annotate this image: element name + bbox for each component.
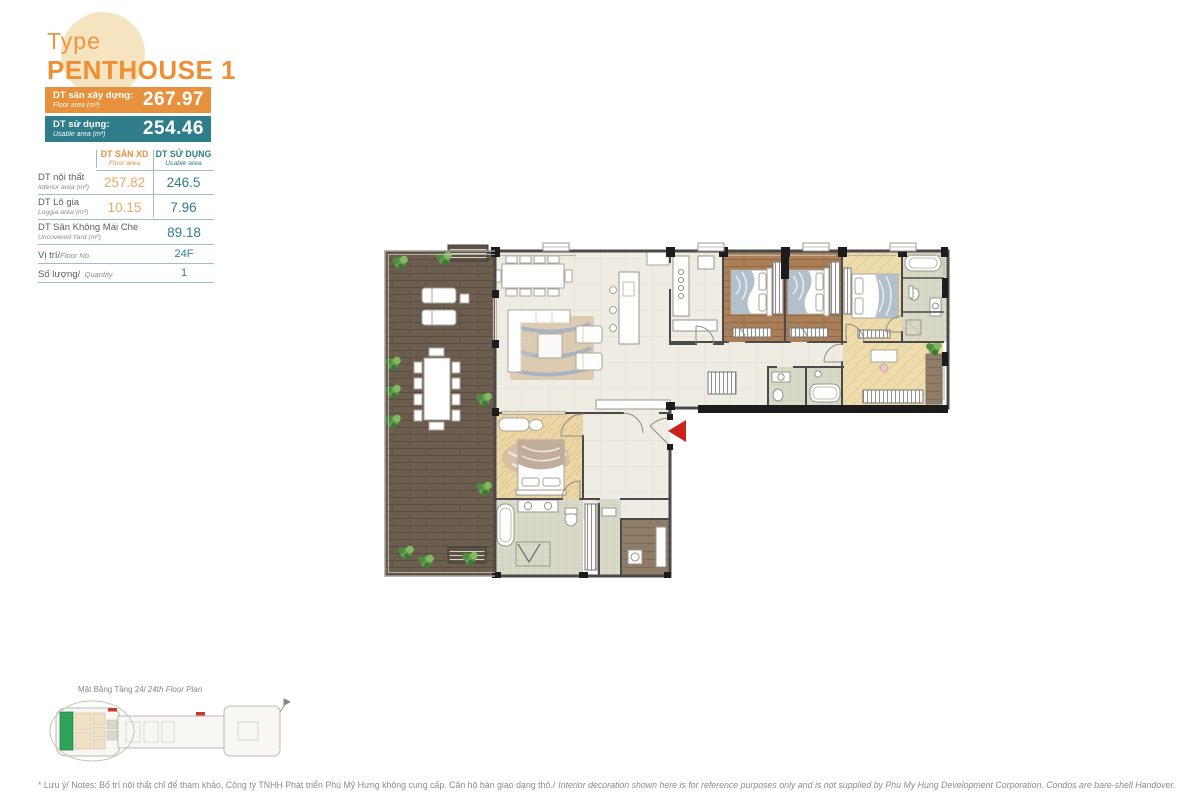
headboard <box>824 268 829 316</box>
chaise <box>499 418 529 431</box>
row-label-en: Interior area (m²) <box>38 184 96 191</box>
table-header-row: DT SÀN XD Floor area DT SỬ DỤNG Usable a… <box>38 147 214 170</box>
headboard <box>767 268 772 316</box>
table-tick-left <box>96 150 97 168</box>
disclaimer-vi: * Lưu ý/ Notes: Bố trí nội thất chỉ để t… <box>38 780 555 790</box>
headboard-wardrobe <box>844 268 851 314</box>
ottoman <box>529 420 543 431</box>
table-row-interior: DT nội thất Interior area (m²) 257.82 24… <box>38 170 214 195</box>
fixture <box>602 508 616 516</box>
table-row-loggia: DT Lô gia Loggia area (m²) 10.15 7.96 <box>38 195 214 220</box>
building-right-wing <box>224 706 280 756</box>
pillow <box>543 478 560 486</box>
col-header-usable-en: Usable area <box>153 160 214 167</box>
area-table: DT SÀN XD Floor area DT SỬ DỤNG Usable a… <box>38 147 214 283</box>
main-floor-plan <box>366 232 966 594</box>
interior-usable-value: 246.5 <box>153 175 214 190</box>
wardrobe-row <box>863 390 923 403</box>
key-plan-caption-vi: Mặt Bằng Tầng 24/ <box>78 685 146 694</box>
key-plan <box>48 696 293 766</box>
stool <box>880 364 888 372</box>
hallway-floor <box>583 413 670 519</box>
unit-type-label: Type <box>47 28 307 55</box>
row-label-vi: DT Sân Không Mái Che <box>38 223 154 234</box>
pillow <box>816 294 823 311</box>
col-header-floor-en: Floor area <box>96 160 153 167</box>
linen-closet <box>708 372 736 394</box>
row-label-en: Floor No. <box>60 251 91 260</box>
floor-no-value: 24F <box>154 248 214 260</box>
row-label-en: Loggia area (m²) <box>38 209 96 216</box>
row-label-en: Quantity <box>85 270 113 279</box>
uncovered-yard-value: 89.18 <box>154 225 214 240</box>
low-cabinet <box>733 328 771 337</box>
bathtub <box>905 255 941 271</box>
low-cabinet <box>790 328 828 337</box>
unit-marker <box>108 708 117 712</box>
loggia-floor-value: 10.15 <box>96 200 153 215</box>
washer <box>628 550 642 564</box>
table-row-uncovered-yard: DT Sân Không Mái Che Uncovered Yard (m²)… <box>38 220 214 245</box>
headboard <box>516 490 566 495</box>
entry-arrow-icon <box>668 420 686 442</box>
armchair <box>576 326 602 343</box>
pillow <box>855 278 863 294</box>
sink <box>815 371 821 377</box>
usable-area-label-vi: DT sử dụng: <box>53 120 109 131</box>
key-plan-caption-en: 24th Floor Plan <box>148 685 202 694</box>
shelf-column <box>926 354 942 404</box>
unit-type-title: PENTHOUSE 1 <box>47 55 307 86</box>
usable-area-banner: DT sử dụng: Usable area (m²) 254.46 <box>45 116 211 142</box>
toilet <box>773 389 783 401</box>
corridor-floor <box>670 342 843 367</box>
pillow <box>855 298 863 314</box>
row-label-vi: DT Lô gia <box>38 198 96 209</box>
counter <box>596 400 670 409</box>
row-label-vi: Vị trí/ <box>38 250 60 261</box>
quantity-value: 1 <box>154 267 214 279</box>
loggia-usable-value: 7.96 <box>153 200 214 215</box>
floor-area-label-vi: DT sàn xây dựng: <box>53 91 133 102</box>
interior-floor-value: 257.82 <box>96 175 153 190</box>
table-row-floor-no: Vị trí/Floor No. 24F <box>38 245 214 264</box>
brochure-page: Type PENTHOUSE 1 DT sàn xây dựng: Floor … <box>0 0 1200 807</box>
disclaimer-en: Interior decoration shown here is for re… <box>558 780 1175 790</box>
floor-area-value: 267.97 <box>143 89 204 111</box>
coffee-table <box>538 334 562 358</box>
usable-area-value: 254.46 <box>143 118 204 140</box>
row-label-vi: Số lượng/ <box>38 269 80 280</box>
col-header-floor-vi: DT SÀN XD <box>96 150 153 160</box>
table-row-quantity: Số lượng/ Quantity 1 <box>38 264 214 283</box>
wardrobe <box>830 262 840 314</box>
shelf <box>656 527 666 567</box>
core <box>107 731 117 740</box>
pillow <box>759 294 766 311</box>
north-arrow-icon <box>280 699 290 712</box>
row-label-en: Uncovered Yard (m²) <box>38 234 154 241</box>
pillow <box>759 273 766 290</box>
disclaimer-note: * Lưu ý/ Notes: Bố trí nội thất chỉ để t… <box>38 780 1188 790</box>
table-header-underline <box>96 170 214 171</box>
highlighted-unit <box>60 712 73 750</box>
floor-area-banner: DT sàn xây dựng: Floor area (m²) 267.97 <box>45 87 211 113</box>
core <box>107 720 117 729</box>
floor-area-label-en: Floor area (m²) <box>53 102 133 110</box>
row-label-vi: DT nội thất <box>38 173 96 184</box>
dresser <box>871 350 897 362</box>
pillow <box>816 273 823 290</box>
table-column-divider <box>153 150 154 217</box>
unit-marker <box>196 712 205 716</box>
armchair <box>576 353 602 370</box>
tall-cabinet <box>647 252 669 265</box>
pillow <box>522 478 539 486</box>
vanity <box>930 298 941 316</box>
key-plan-caption: Mặt Bằng Tầng 24/24th Floor Plan <box>78 685 202 694</box>
duvet <box>518 440 564 470</box>
wardrobe-column <box>585 504 597 570</box>
col-header-usable-vi: DT SỬ DỤNG <box>153 150 214 160</box>
usable-area-label-en: Usable area (m²) <box>53 131 109 139</box>
